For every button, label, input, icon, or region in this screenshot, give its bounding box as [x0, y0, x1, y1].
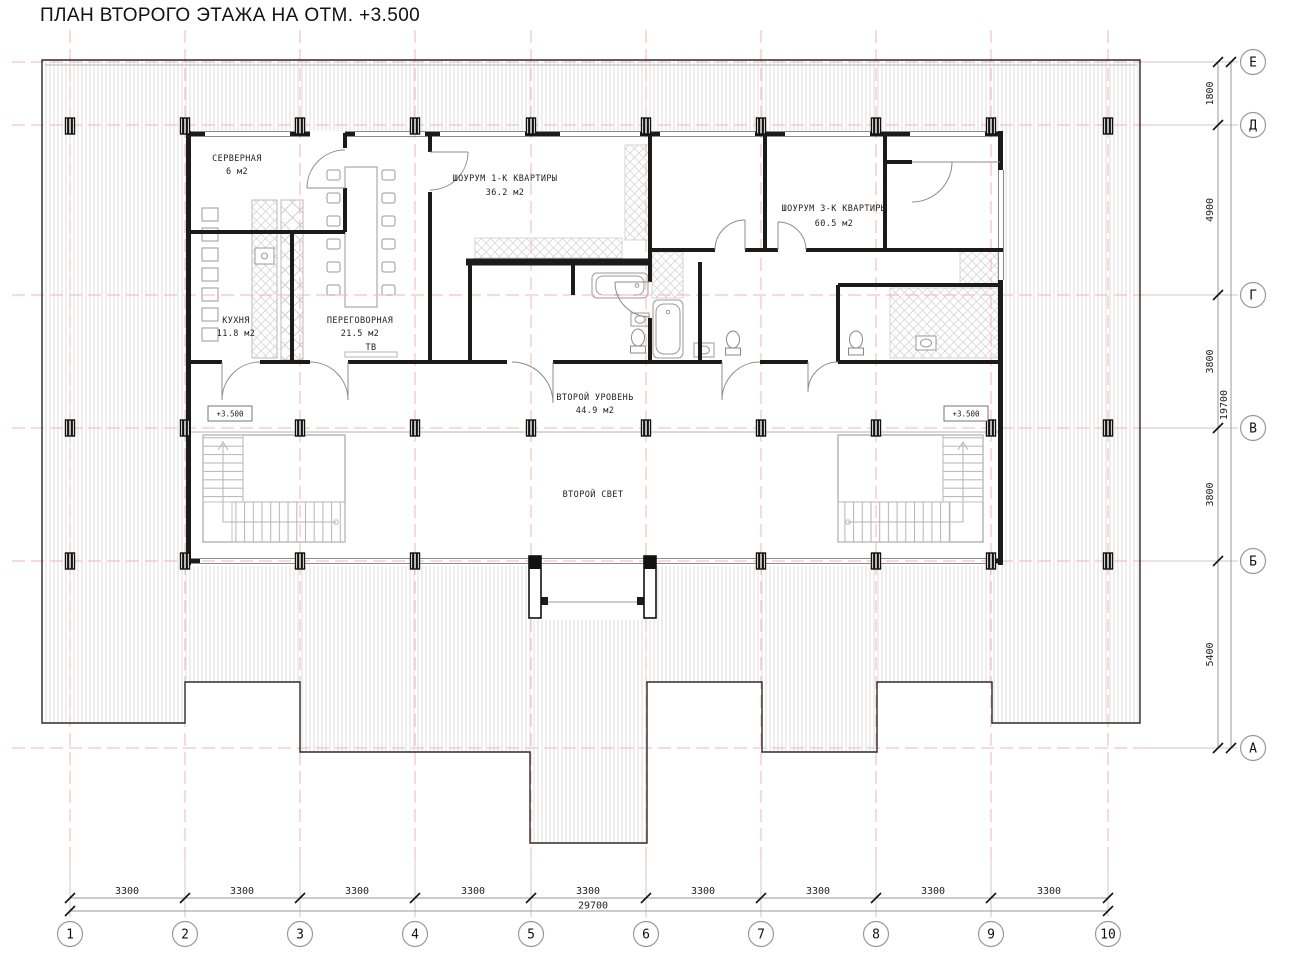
- axis-bubble-row-b: Б: [1241, 549, 1266, 574]
- toilet: [849, 331, 864, 355]
- dim-3300: 3300: [230, 886, 254, 897]
- drawing-sheet: СЕРВЕРНАЯ 6 м2 КУХНЯ 11.8 м2 ПЕРЕГОВОРНА…: [0, 0, 1300, 953]
- axis-bubbles-bottom: 1 2 3 4 5 6 7 8 9 10: [58, 922, 1121, 947]
- sink: [916, 336, 936, 350]
- axis-bubbles-right: Е Д Г В Б А: [1241, 50, 1266, 761]
- dim-4900: 4900: [1205, 198, 1216, 222]
- entrance-recess: [528, 556, 652, 620]
- dim-3300: 3300: [921, 886, 945, 897]
- svg-text:1: 1: [66, 928, 74, 943]
- label-showroom3-name: ШОУРУМ 3-К КВАРТИРЫ: [782, 204, 887, 214]
- svg-text:5: 5: [527, 928, 535, 943]
- axis-bubble-row-e: Е: [1241, 50, 1266, 75]
- tile-area: [890, 288, 998, 358]
- bathtub-vertical: [653, 300, 683, 358]
- label-showroom1-area: 36.2 м2: [486, 188, 525, 198]
- label-second-level-name: ВТОРОЙ УРОВЕНЬ: [556, 391, 633, 403]
- dim-3300: 3300: [345, 886, 369, 897]
- label-server-area: 6 м2: [226, 167, 248, 177]
- dim-3300: 3300: [461, 886, 485, 897]
- svg-text:2: 2: [181, 928, 189, 943]
- axis-bubble-col-2: 2: [173, 922, 198, 947]
- dim-5400: 5400: [1205, 642, 1216, 666]
- axis-bubble-col-6: 6: [634, 922, 659, 947]
- axis-bubble-row-a: А: [1241, 736, 1266, 761]
- dim-3300: 3300: [806, 886, 830, 897]
- tile-area: [475, 238, 622, 258]
- elevation-right: +3.500: [952, 410, 980, 419]
- kitchen-units: [202, 208, 218, 341]
- dim-3300: 3300: [115, 886, 139, 897]
- axis-bubble-row-g: Г: [1241, 283, 1266, 308]
- label-tv: ТВ: [365, 343, 376, 353]
- label-kitchen-name: КУХНЯ: [222, 316, 250, 326]
- dim-3800: 3800: [1205, 482, 1216, 506]
- axis-bubble-col-4: 4: [403, 922, 428, 947]
- axis-bubble-row-v: В: [1241, 416, 1266, 441]
- label-server-name: СЕРВЕРНАЯ: [212, 154, 262, 164]
- svg-text:Е: Е: [1249, 56, 1257, 71]
- kitchen-counter: [252, 200, 277, 358]
- label-second-level-area: 44.9 м2: [576, 406, 615, 416]
- dim-total-bottom: 29700: [578, 901, 608, 912]
- sink: [694, 343, 714, 357]
- svg-text:Б: Б: [1249, 555, 1257, 570]
- svg-text:4: 4: [411, 928, 419, 943]
- tile-area: [652, 252, 683, 298]
- svg-text:8: 8: [872, 928, 880, 943]
- svg-text:7: 7: [757, 928, 765, 943]
- toilet: [631, 329, 646, 353]
- axis-bubble-col-7: 7: [749, 922, 774, 947]
- label-showroom3-area: 60.5 м2: [815, 219, 854, 229]
- label-meeting-area: 21.5 м2: [341, 329, 380, 339]
- axis-bubble-col-9: 9: [979, 922, 1004, 947]
- label-second-light: ВТОРОЙ СВЕТ: [563, 488, 624, 500]
- floor-plan-svg: СЕРВЕРНАЯ 6 м2 КУХНЯ 11.8 м2 ПЕРЕГОВОРНА…: [0, 0, 1300, 953]
- axis-bubble-col-5: 5: [519, 922, 544, 947]
- svg-text:9: 9: [987, 928, 995, 943]
- elevation-left: +3.500: [216, 410, 244, 419]
- label-kitchen-area: 11.8 м2: [217, 329, 256, 339]
- bathtub-horizontal: [592, 273, 648, 298]
- svg-text:А: А: [1249, 742, 1257, 757]
- dimensions-bottom: 3300 3300 3300 3300 3300 3300 3300 3300 …: [65, 858, 1113, 916]
- svg-text:Г: Г: [1249, 289, 1257, 304]
- dim-3300: 3300: [576, 886, 600, 897]
- svg-text:3: 3: [296, 928, 304, 943]
- svg-text:Д: Д: [1249, 119, 1257, 134]
- svg-text:В: В: [1249, 422, 1257, 437]
- dim-3800: 3800: [1205, 349, 1216, 373]
- label-meeting-name: ПЕРЕГОВОРНАЯ: [327, 316, 393, 326]
- dim-3300: 3300: [691, 886, 715, 897]
- svg-text:6: 6: [642, 928, 650, 943]
- dim-total-right: 19700: [1219, 390, 1230, 420]
- label-showroom1-name: ШОУРУМ 1-К КВАРТИРЫ: [453, 174, 558, 184]
- page-title: ПЛАН ВТОРОГО ЭТАЖА НА ОТМ. +3.500: [40, 5, 420, 26]
- dim-1800: 1800: [1205, 81, 1216, 105]
- axis-bubble-col-8: 8: [864, 922, 889, 947]
- axis-bubble-col-3: 3: [288, 922, 313, 947]
- dim-3300: 3300: [1037, 886, 1061, 897]
- svg-text:10: 10: [1100, 928, 1116, 943]
- tile-area: [960, 250, 998, 288]
- dimensions-right: 1800 4900 3800 3800 5400 19700: [1146, 57, 1236, 753]
- axis-bubble-col-10: 10: [1096, 922, 1121, 947]
- axis-bubble-col-1: 1: [58, 922, 83, 947]
- toilet: [726, 331, 741, 355]
- axis-bubble-row-d: Д: [1241, 113, 1266, 138]
